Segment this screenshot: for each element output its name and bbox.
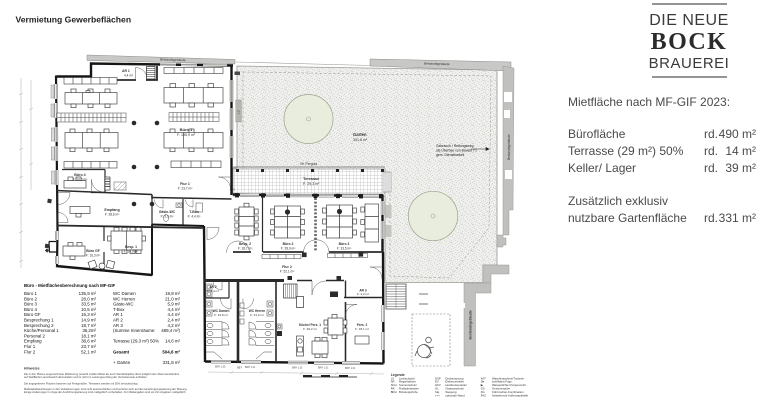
svg-text:16,3 m²: 16,3 m² bbox=[81, 312, 96, 317]
svg-text:BRH 1,01: BRH 1,01 bbox=[245, 366, 256, 369]
svg-text:rd.: rd. bbox=[704, 161, 718, 175]
svg-text:BOCK: BOCK bbox=[651, 29, 728, 55]
svg-text:Empfang: Empfang bbox=[104, 208, 119, 212]
svg-text:+++: +++ bbox=[435, 393, 440, 397]
svg-text:F: 52,1 m²: F: 52,1 m² bbox=[280, 270, 295, 274]
svg-text:Gäste-WC: Gäste-WC bbox=[113, 302, 134, 307]
svg-text:504,6 m²: 504,6 m² bbox=[162, 349, 180, 354]
svg-text:4,4 m²: 4,4 m² bbox=[168, 307, 181, 312]
svg-text:gem. Dienstbarkeit: gem. Dienstbarkeit bbox=[436, 153, 464, 157]
svg-text:135,9 m²: 135,9 m² bbox=[79, 291, 97, 296]
svg-text:T-Box: T-Box bbox=[113, 307, 125, 312]
svg-text:Bestandsgebäude: Bestandsgebäude bbox=[160, 58, 186, 63]
svg-text:38,6 m²: 38,6 m² bbox=[81, 339, 96, 344]
svg-text:(Summe Innenräume:: (Summe Innenräume: bbox=[113, 328, 155, 333]
svg-text:490 m²: 490 m² bbox=[719, 127, 756, 141]
svg-text:BRH 1,05: BRH 1,05 bbox=[292, 366, 303, 369]
svg-text:F: 23,7 m²: F: 23,7 m² bbox=[178, 187, 193, 191]
svg-text:F: 36,2 m²: F: 36,2 m² bbox=[303, 327, 317, 331]
svg-text:Flur 1: Flur 1 bbox=[180, 182, 190, 186]
svg-text:331,8 m²: 331,8 m² bbox=[163, 360, 181, 365]
svg-text:Besprechung 1: Besprechung 1 bbox=[24, 318, 54, 323]
svg-text:Zusätzlich exklusiv: Zusätzlich exklusiv bbox=[568, 194, 668, 208]
svg-text:BRAUEREI: BRAUEREI bbox=[649, 55, 730, 72]
svg-text:Büro 2: Büro 2 bbox=[283, 242, 294, 246]
svg-text:4,4 m²: 4,4 m² bbox=[124, 74, 133, 78]
svg-text:F: 18,7 m²: F: 18,7 m² bbox=[238, 247, 253, 251]
svg-text:Mietfläche nach MF-GIF 2023:: Mietfläche nach MF-GIF 2023: bbox=[568, 95, 730, 109]
svg-text:BRH 1,01: BRH 1,01 bbox=[345, 367, 356, 370]
svg-text:auf Stellflächen anschaulich d: auf Stellflächen anschaulich darzustelle… bbox=[24, 375, 148, 379]
svg-text:F: 29,3 m²: F: 29,3 m² bbox=[303, 182, 320, 186]
svg-text:nutzbare Gartenfläche: nutzbare Gartenfläche bbox=[568, 211, 687, 225]
svg-text:VK Pergola: VK Pergola bbox=[300, 162, 317, 166]
svg-text:Flur 1: Flur 1 bbox=[24, 344, 36, 349]
svg-text:Büro GF: Büro GF bbox=[24, 312, 41, 317]
svg-text:Büro GF: Büro GF bbox=[86, 249, 100, 253]
svg-text:Büro 1: Büro 1 bbox=[180, 127, 193, 132]
svg-text:4,4 m²: 4,4 m² bbox=[168, 312, 181, 317]
svg-text:4,2 m²: 4,2 m² bbox=[168, 323, 181, 328]
svg-text:WC Damen: WC Damen bbox=[113, 291, 136, 296]
svg-text:F: 10,5 m²: F: 10,5 m² bbox=[73, 178, 88, 182]
svg-text:5,9 m²: 5,9 m² bbox=[168, 302, 181, 307]
svg-text:Terrasse: Terrasse bbox=[303, 176, 320, 181]
svg-text:F: 5,9 m²: F: 5,9 m² bbox=[161, 215, 174, 219]
svg-text:Besp. 1: Besp. 1 bbox=[125, 245, 137, 249]
svg-text:489,4 m²): 489,4 m²) bbox=[161, 328, 180, 333]
svg-text:optionale Wand: optionale Wand bbox=[445, 393, 465, 397]
svg-text:10,5 m²: 10,5 m² bbox=[81, 307, 96, 312]
svg-text:Die angegebenen Flächen basier: Die angegebenen Flächen basieren auf Fer… bbox=[24, 382, 138, 386]
svg-text:Flur 2: Flur 2 bbox=[282, 265, 292, 269]
svg-text:LS: LS bbox=[237, 110, 241, 113]
svg-text:36,2m²: 36,2m² bbox=[82, 328, 96, 333]
svg-text:33,5 m²: 33,5 m² bbox=[81, 302, 96, 307]
svg-text:Personal 2: Personal 2 bbox=[24, 333, 46, 338]
svg-text:14,6 m²: 14,6 m² bbox=[165, 339, 180, 344]
svg-text:Büro 3: Büro 3 bbox=[24, 302, 37, 307]
svg-text:Vermietung Gewerbeflächen: Vermietung Gewerbeflächen bbox=[16, 15, 132, 25]
svg-text:freistehende Außenzapfstelle: freistehende Außenzapfstelle bbox=[492, 393, 529, 397]
svg-text:F: 18,1 m²: F: 18,1 m² bbox=[355, 327, 369, 331]
svg-text:rd.: rd. bbox=[704, 144, 718, 158]
svg-text:14 m²: 14 m² bbox=[725, 144, 756, 158]
svg-text:Gebrauch / Rettungsweg: Gebrauch / Rettungsweg bbox=[436, 144, 474, 148]
svg-text:Flur 2: Flur 2 bbox=[24, 349, 36, 354]
svg-text:19,8 m²: 19,8 m² bbox=[165, 291, 180, 296]
svg-text:18,7 m²: 18,7 m² bbox=[81, 323, 96, 328]
svg-text:52,1 m²: 52,1 m² bbox=[81, 349, 96, 354]
svg-text:WC Herren: WC Herren bbox=[113, 296, 136, 301]
svg-text:rd.: rd. bbox=[704, 127, 718, 141]
svg-text:AR 3: AR 3 bbox=[113, 323, 123, 328]
svg-text:rd.: rd. bbox=[704, 211, 718, 225]
svg-text:Terrasse (29,3 m²) 50%: Terrasse (29,3 m²) 50% bbox=[113, 339, 159, 344]
svg-text:AR 2: AR 2 bbox=[113, 318, 123, 323]
svg-text:T-Box: T-Box bbox=[189, 210, 199, 214]
svg-text:Besp. 2: Besp. 2 bbox=[239, 242, 251, 246]
svg-text:F: 33,5 m²: F: 33,5 m² bbox=[337, 247, 352, 251]
svg-text:23,7 m²: 23,7 m² bbox=[81, 344, 96, 349]
svg-text:Terrasse (29 m²) 50%: Terrasse (29 m²) 50% bbox=[568, 144, 684, 158]
svg-text:FAZ: FAZ bbox=[481, 393, 486, 397]
svg-text:Gäste-WC: Gäste-WC bbox=[159, 210, 176, 214]
svg-text:F: 14,9 m²: F: 14,9 m² bbox=[124, 250, 139, 254]
svg-text:F: 4,4 m²: F: 4,4 m² bbox=[188, 215, 201, 219]
svg-text:21,0 m²: 21,0 m² bbox=[165, 296, 180, 301]
svg-text:F: 38,6 m²: F: 38,6 m² bbox=[105, 213, 120, 217]
svg-text:331 m²: 331 m² bbox=[719, 211, 756, 225]
svg-text:Brüstungshöhe: Brüstungshöhe bbox=[399, 390, 418, 394]
svg-text:Büro 3: Büro 3 bbox=[339, 242, 350, 246]
svg-text:F: 2,4 m²: F: 2,4 m² bbox=[207, 289, 219, 293]
svg-text:BRH: BRH bbox=[391, 390, 397, 394]
svg-text:Büro 4: Büro 4 bbox=[74, 173, 85, 177]
svg-text:Bestandsgebäude: Bestandsgebäude bbox=[424, 62, 450, 67]
svg-text:F: 4,2 m²: F: 4,2 m² bbox=[357, 292, 369, 296]
svg-text:Gesamt: Gesamt bbox=[113, 349, 130, 354]
svg-text:F: 19,8 m²: F: 19,8 m² bbox=[214, 313, 228, 317]
svg-text:F: 28,0 m²: F: 28,0 m² bbox=[281, 247, 296, 251]
svg-text:BRH 1,05: BRH 1,05 bbox=[215, 366, 226, 369]
svg-text:18,1 m²: 18,1 m² bbox=[81, 333, 96, 338]
svg-text:Empfang: Empfang bbox=[24, 339, 42, 344]
svg-text:F: 135,9 m²: F: 135,9 m² bbox=[177, 133, 196, 137]
svg-text:39 m²: 39 m² bbox=[725, 161, 756, 175]
svg-text:14,9 m²: 14,9 m² bbox=[81, 318, 96, 323]
svg-text:Besprechung 2: Besprechung 2 bbox=[24, 323, 54, 328]
svg-text:Büro 1: Büro 1 bbox=[24, 291, 37, 296]
svg-text:Büro - Mietflächenberechnung n: Büro - Mietflächenberechnung nach MF-GIF bbox=[24, 283, 116, 288]
svg-text:BRH 1,01: BRH 1,01 bbox=[318, 367, 329, 370]
svg-text:Bestandsgebäude: Bestandsgebäude bbox=[507, 134, 511, 160]
svg-text:331,8 m²: 331,8 m² bbox=[353, 138, 368, 142]
svg-text:Büro 4: Büro 4 bbox=[24, 307, 37, 312]
svg-text:Garten: Garten bbox=[353, 132, 367, 137]
svg-text:DIE NEUE: DIE NEUE bbox=[649, 12, 729, 29]
svg-text:+ Garten: + Garten bbox=[113, 360, 131, 365]
svg-text:Büro 2: Büro 2 bbox=[24, 296, 37, 301]
svg-text:F: 16,3 m²: F: 16,3 m² bbox=[86, 254, 101, 258]
svg-text:2,4 m²: 2,4 m² bbox=[168, 318, 181, 323]
svg-text:F: 21,0 m²: F: 21,0 m² bbox=[250, 313, 264, 317]
svg-text:als Überbau von Bauteil T1: als Überbau von Bauteil T1 bbox=[436, 149, 477, 153]
svg-text:Bestandsgebäude: Bestandsgebäude bbox=[469, 310, 473, 339]
svg-text:Bürofläche: Bürofläche bbox=[568, 127, 626, 141]
svg-text:Küche/Personal 1: Küche/Personal 1 bbox=[24, 328, 59, 333]
svg-text:Keller/ Lager: Keller/ Lager bbox=[568, 161, 636, 175]
svg-text:AR 1: AR 1 bbox=[113, 312, 123, 317]
svg-text:Einige Änderungen im Zuge der: Einige Änderungen im Zuge der Ausführung… bbox=[24, 390, 186, 394]
svg-text:Hinweise: Hinweise bbox=[24, 367, 40, 371]
svg-text:28,0 m²: 28,0 m² bbox=[81, 296, 96, 301]
svg-text:697: 697 bbox=[237, 366, 242, 370]
svg-text:AR 1: AR 1 bbox=[122, 69, 130, 73]
